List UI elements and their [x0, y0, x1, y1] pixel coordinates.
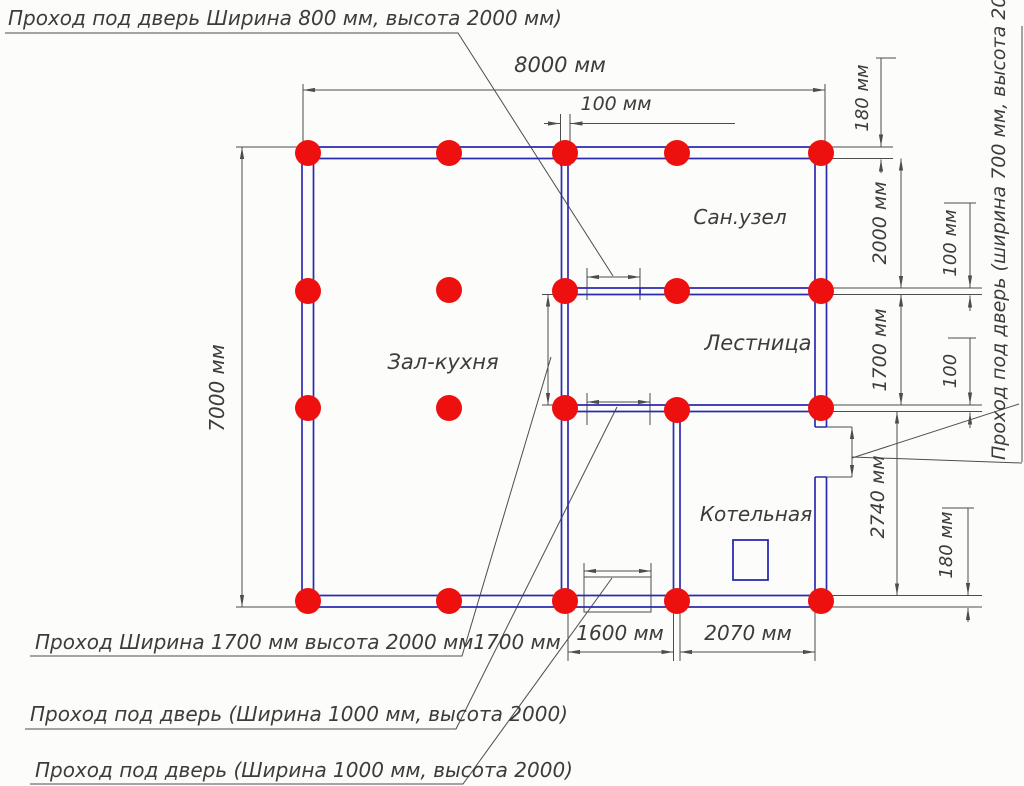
interior-wall-vertical-main: [562, 159, 569, 596]
room-label-hall-kitchen: Зал-кухня: [387, 350, 498, 374]
pile-marker: [808, 588, 834, 614]
callout-bottom-first: Проход Ширина 1700 мм высота 2000 мм1700…: [35, 630, 561, 654]
dim-label-1700: 1700 мм: [869, 308, 891, 391]
pile-marker: [552, 278, 578, 304]
pile-marker: [295, 278, 321, 304]
pile-marker: [436, 277, 462, 303]
pile-marker: [295, 588, 321, 614]
pile-marker: [664, 278, 690, 304]
leader-bottom-second: [25, 407, 617, 729]
pile-marker: [436, 140, 462, 166]
pile-marker: [295, 140, 321, 166]
right-wall-door-jambs: [815, 427, 827, 477]
pile-marker: [295, 395, 321, 421]
pile-marker: [552, 588, 578, 614]
dim-label-2000: 2000 мм: [869, 181, 891, 264]
callout-bottom-second: Проход под дверь (Ширина 1000 мм, высота…: [30, 702, 568, 726]
callout-right-vertical: Проход под дверь (ширина 700 мм, высота …: [988, 0, 1010, 460]
dim-label-100-lower: 100: [940, 354, 961, 388]
labels: 8000 мм 100 мм 7000 мм 180 мм 2000 мм 10…: [8, 0, 1010, 782]
callout-top-left: Проход под дверь Ширина 800 мм, высота 2…: [8, 6, 562, 30]
pile-marker: [436, 395, 462, 421]
room-label-stairs: Лестница: [703, 331, 811, 355]
dim-label-2070: 2070 мм: [704, 621, 791, 645]
leader-bottom-first: [30, 357, 551, 656]
room-label-boiler: Котельная: [700, 502, 812, 526]
pile-marker: [808, 140, 834, 166]
dim-label-180-top: 180 мм: [852, 64, 873, 131]
pile-marker: [664, 140, 690, 166]
pile-marker: [436, 588, 462, 614]
pile-marker: [808, 278, 834, 304]
interior-wall-boiler: [674, 412, 681, 596]
dim-label-100-upper: 100 мм: [940, 209, 961, 276]
pile-marker: [552, 395, 578, 421]
callout-bottom-third: Проход под дверь (Ширина 1000 мм, высота…: [35, 758, 573, 782]
dim-label-180-bottom: 180 мм: [936, 511, 957, 578]
pile-marker: [808, 395, 834, 421]
floor-plan-drawing: 8000 мм 100 мм 7000 мм 180 мм 2000 мм 10…: [0, 0, 1024, 786]
interior-wall-stairs: [568, 405, 815, 412]
dim-label-2740: 2740 мм: [867, 455, 889, 538]
interior-wall-bathroom: [568, 288, 815, 295]
boiler-unit-symbol: [733, 540, 768, 580]
dim-label-8000: 8000 мм: [514, 53, 606, 77]
leader-bottom-third: [30, 578, 612, 784]
pile-marker: [552, 140, 578, 166]
dim-label-7000: 7000 мм: [205, 344, 229, 431]
pile-marker: [664, 397, 690, 423]
room-label-bathroom: Сан.узел: [693, 205, 786, 229]
dim-label-100-top: 100 мм: [581, 93, 652, 115]
pile-marker: [664, 588, 690, 614]
dim-label-1600: 1600 мм: [576, 621, 663, 645]
